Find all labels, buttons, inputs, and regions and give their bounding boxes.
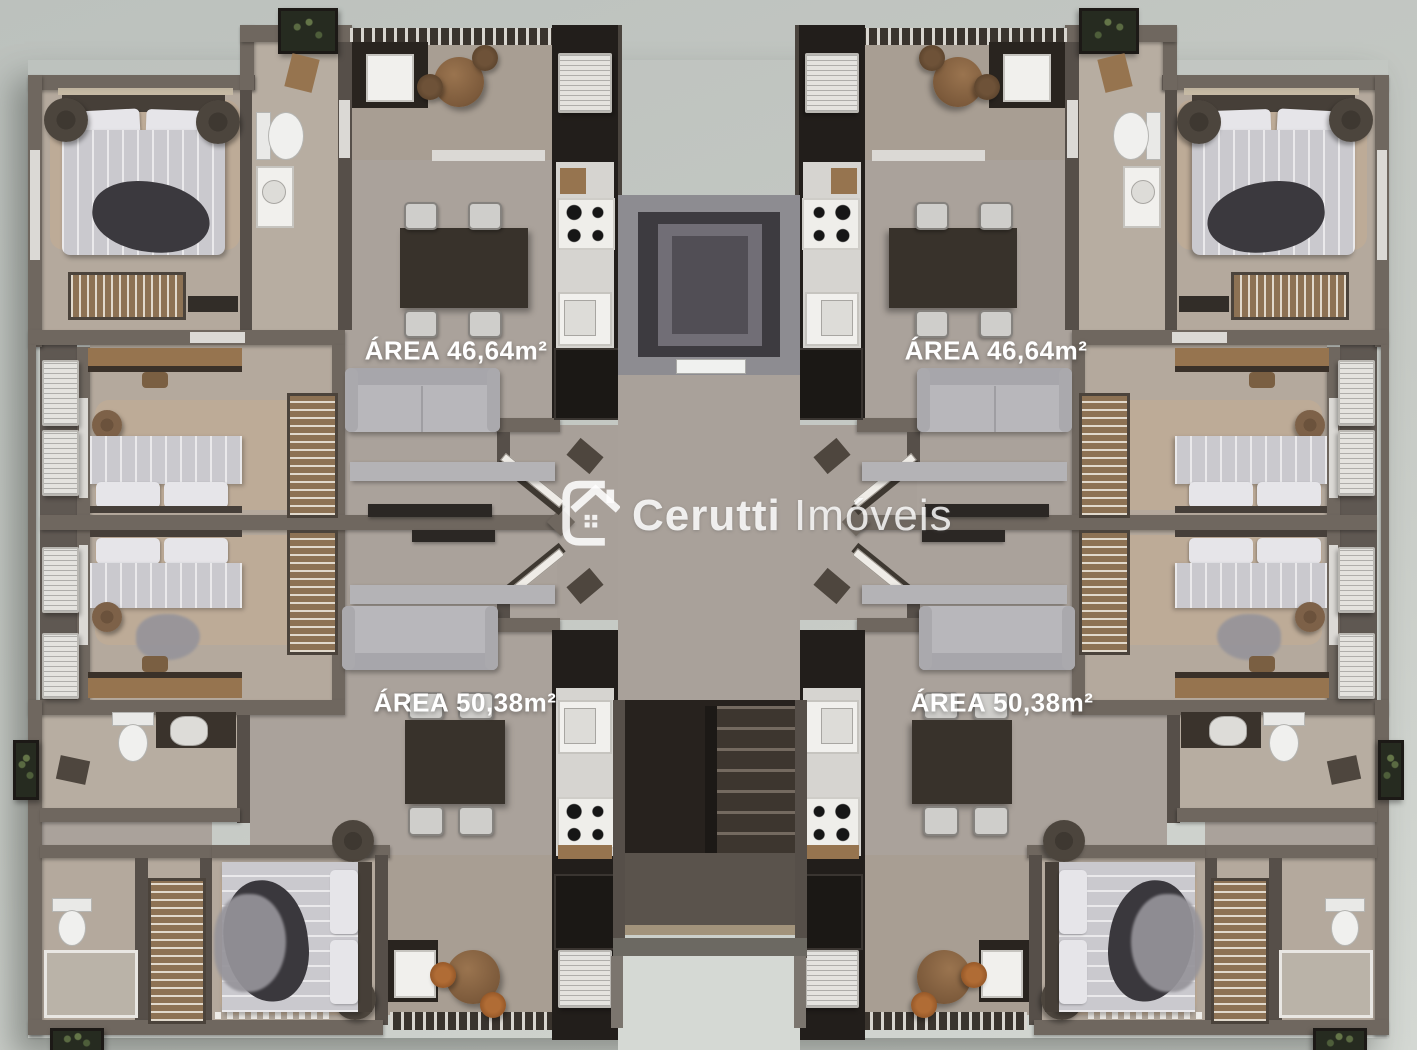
floor-plan-render: ÁREA 46,64m² ÁREA 46,64m² ÁREA 50,38m² Á… bbox=[0, 0, 1417, 1050]
watermark-brand: Cerutti bbox=[632, 491, 781, 540]
area-label-unit-top-left: ÁREA 46,64m² bbox=[365, 336, 548, 367]
area-label-unit-top-right: ÁREA 46,64m² bbox=[905, 336, 1088, 367]
area-label-unit-bottom-right: ÁREA 50,38m² bbox=[911, 688, 1094, 719]
watermark-text: Cerutti Imóveis bbox=[632, 491, 953, 541]
house-in-c-logo-icon bbox=[556, 470, 620, 563]
watermark-suffix: Imóveis bbox=[794, 491, 953, 540]
text-overlay: ÁREA 46,64m² ÁREA 46,64m² ÁREA 50,38m² Á… bbox=[0, 0, 1417, 1050]
area-label-unit-bottom-left: ÁREA 50,38m² bbox=[374, 688, 557, 719]
watermark: Cerutti Imóveis bbox=[556, 466, 953, 566]
